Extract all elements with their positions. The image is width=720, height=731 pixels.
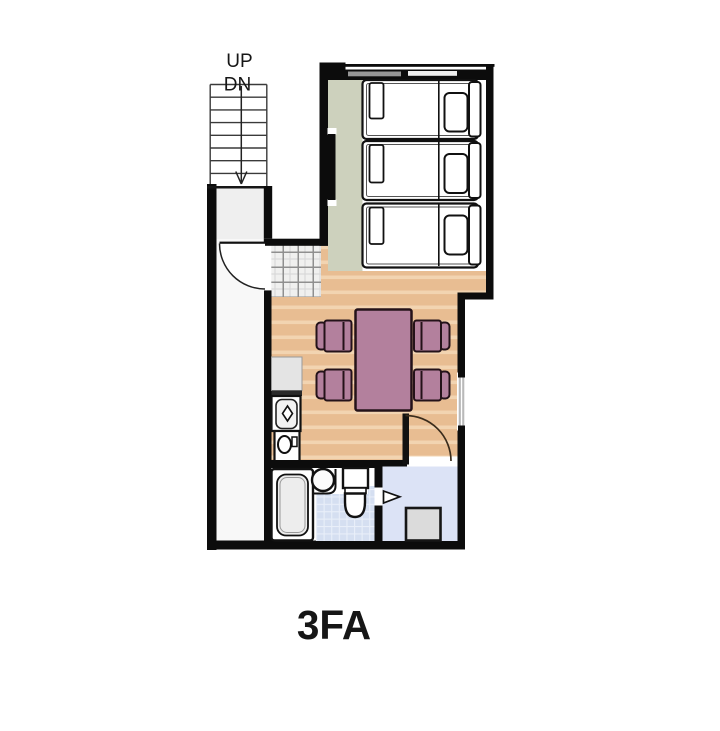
- svg-text:UP: UP: [226, 51, 252, 72]
- svg-text:DN: DN: [224, 75, 251, 96]
- svg-text:3FA: 3FA: [297, 602, 371, 648]
